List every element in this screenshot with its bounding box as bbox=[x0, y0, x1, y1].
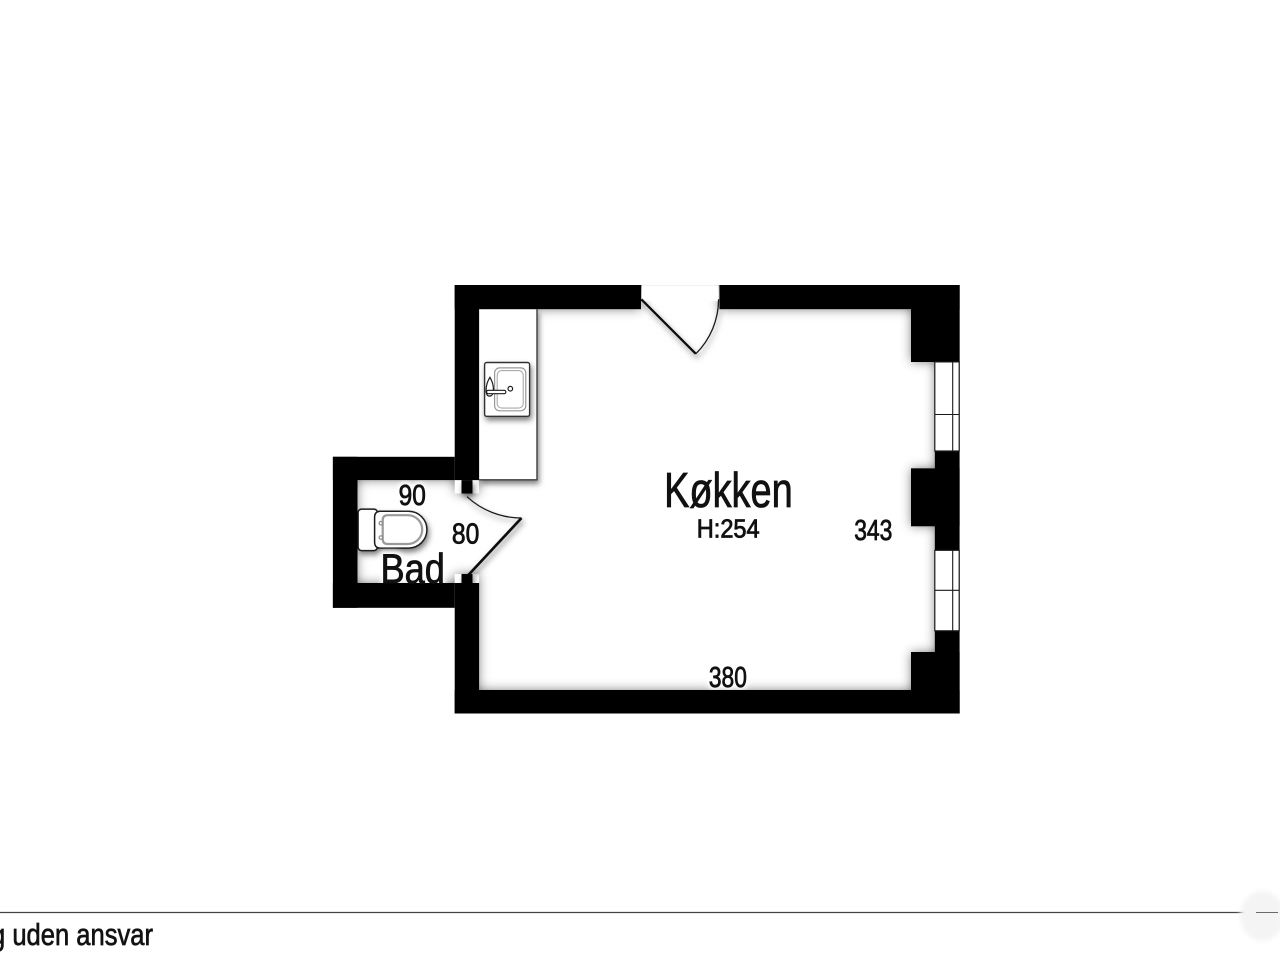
svg-text:g uden ansvar: g uden ansvar bbox=[0, 918, 153, 952]
svg-text:90: 90 bbox=[399, 480, 426, 512]
svg-text:343: 343 bbox=[854, 515, 892, 547]
svg-text:Køkken: Køkken bbox=[664, 464, 793, 518]
svg-text:H:254: H:254 bbox=[697, 516, 760, 544]
svg-text:Bad: Bad bbox=[381, 545, 445, 592]
svg-text:380: 380 bbox=[709, 662, 747, 694]
svg-text:80: 80 bbox=[452, 519, 479, 551]
